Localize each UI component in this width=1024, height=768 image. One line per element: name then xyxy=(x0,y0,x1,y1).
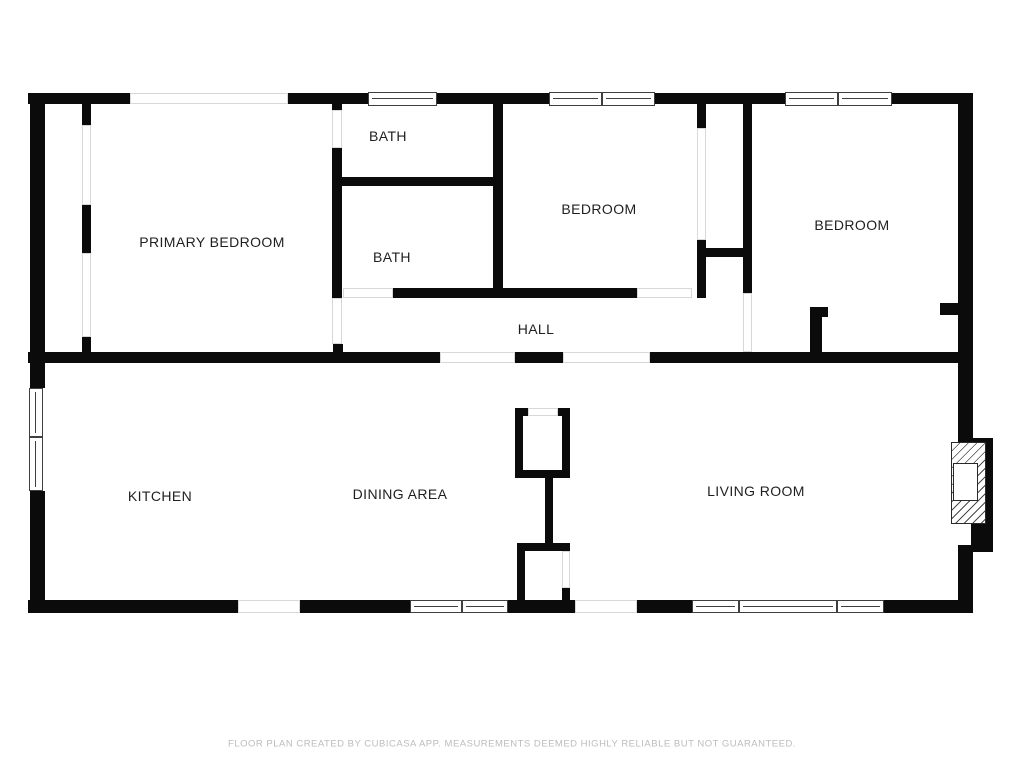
opening-bath-lower-door xyxy=(343,288,393,298)
wall-top-2 xyxy=(288,93,368,104)
window-bedroom-right-left xyxy=(785,92,838,106)
window-dining-left xyxy=(410,600,462,613)
wall-bath-left xyxy=(332,148,342,298)
window-kitchen-lower xyxy=(29,437,43,491)
opening-bedroom-right-door xyxy=(743,293,752,352)
wall-entry-topbox-right xyxy=(562,408,570,478)
wall-top-4 xyxy=(655,93,785,104)
wall-bedroom-divider xyxy=(743,104,752,293)
fireplace-firebox-icon xyxy=(953,463,978,501)
opening-top-primary-bedroom xyxy=(130,93,288,104)
room-label-dining-area: DINING AREA xyxy=(353,486,448,502)
wall-entry-bottombox-right-stub xyxy=(562,588,570,600)
window-bedroom-right-right xyxy=(838,92,892,106)
wall-bottom-4 xyxy=(637,600,692,613)
opening-bm-closet xyxy=(697,128,706,240)
wall-pb-closet-1 xyxy=(82,104,91,125)
footer-disclaimer: FLOOR PLAN CREATED BY CUBICASA APP. MEAS… xyxy=(228,739,796,750)
wall-hall-bottom-1 xyxy=(28,352,440,363)
opening-front-door xyxy=(575,600,637,613)
wall-bottom-3 xyxy=(508,600,575,613)
window-living-right xyxy=(837,600,884,613)
opening-bedroom-middle-door xyxy=(637,288,692,298)
opening-primary-bedroom-door xyxy=(332,298,342,344)
opening-hall-dining-2 xyxy=(563,352,650,363)
wall-entry-connector xyxy=(545,478,553,545)
opening-entry-topbox xyxy=(528,408,558,416)
room-label-bath-lower: BATH xyxy=(373,249,411,265)
wall-entry-bottombox-left xyxy=(517,543,525,600)
room-label-living-room: LIVING ROOM xyxy=(707,483,805,499)
wall-left-upper xyxy=(30,93,45,388)
opening-hall-dining-1 xyxy=(440,352,515,363)
wall-left-lower xyxy=(30,491,45,613)
wall-hall-bottom-3 xyxy=(650,352,973,363)
wall-bottom-5 xyxy=(884,600,973,613)
room-label-bedroom-middle: BEDROOM xyxy=(561,201,636,217)
wall-pb-closet-3 xyxy=(82,337,91,353)
window-bedroom-middle-left xyxy=(549,92,602,106)
window-dining-right xyxy=(462,600,508,613)
opening-kitchen-door xyxy=(238,600,300,613)
window-living-left xyxy=(692,600,739,613)
window-bath-top xyxy=(368,92,437,106)
wall-top-3 xyxy=(437,93,549,104)
wall-bm-closet-stub xyxy=(697,104,706,128)
wall-bottom-1 xyxy=(28,600,238,613)
wall-right-upper xyxy=(958,93,973,445)
wall-pb-closet-2 xyxy=(82,205,91,253)
window-kitchen-upper xyxy=(29,388,43,437)
wall-hall-bottom-2 xyxy=(515,352,563,363)
wall-hall-top xyxy=(393,288,637,298)
opening-pb-closet-upper xyxy=(82,125,91,205)
wall-pb-door-jamb xyxy=(333,344,343,352)
opening-entry-bottombox xyxy=(562,551,570,588)
window-living-center xyxy=(739,600,837,613)
floor-plan: PRIMARY BEDROOM BATH BATH BEDROOM BEDROO… xyxy=(0,0,1024,768)
wall-bath-divider xyxy=(332,177,503,186)
room-label-bath-upper: BATH xyxy=(369,128,407,144)
wall-bottom-2 xyxy=(300,600,410,613)
wall-br-closet-horizontal xyxy=(810,307,828,317)
opening-pb-closet-lower xyxy=(82,253,91,337)
room-label-bedroom-right: BEDROOM xyxy=(814,217,889,233)
room-label-hall: HALL xyxy=(518,321,555,337)
wall-entry-topbox-bottom xyxy=(515,470,570,478)
room-label-kitchen: KITCHEN xyxy=(128,488,192,504)
opening-bath-upper-door xyxy=(332,110,342,148)
wall-bath-right xyxy=(493,104,503,298)
room-label-primary-bedroom: PRIMARY BEDROOM xyxy=(139,234,285,250)
wall-br-closet-right-stub xyxy=(940,303,958,315)
wall-entry-topbox-left xyxy=(515,408,523,478)
window-bedroom-middle-right xyxy=(602,92,655,106)
